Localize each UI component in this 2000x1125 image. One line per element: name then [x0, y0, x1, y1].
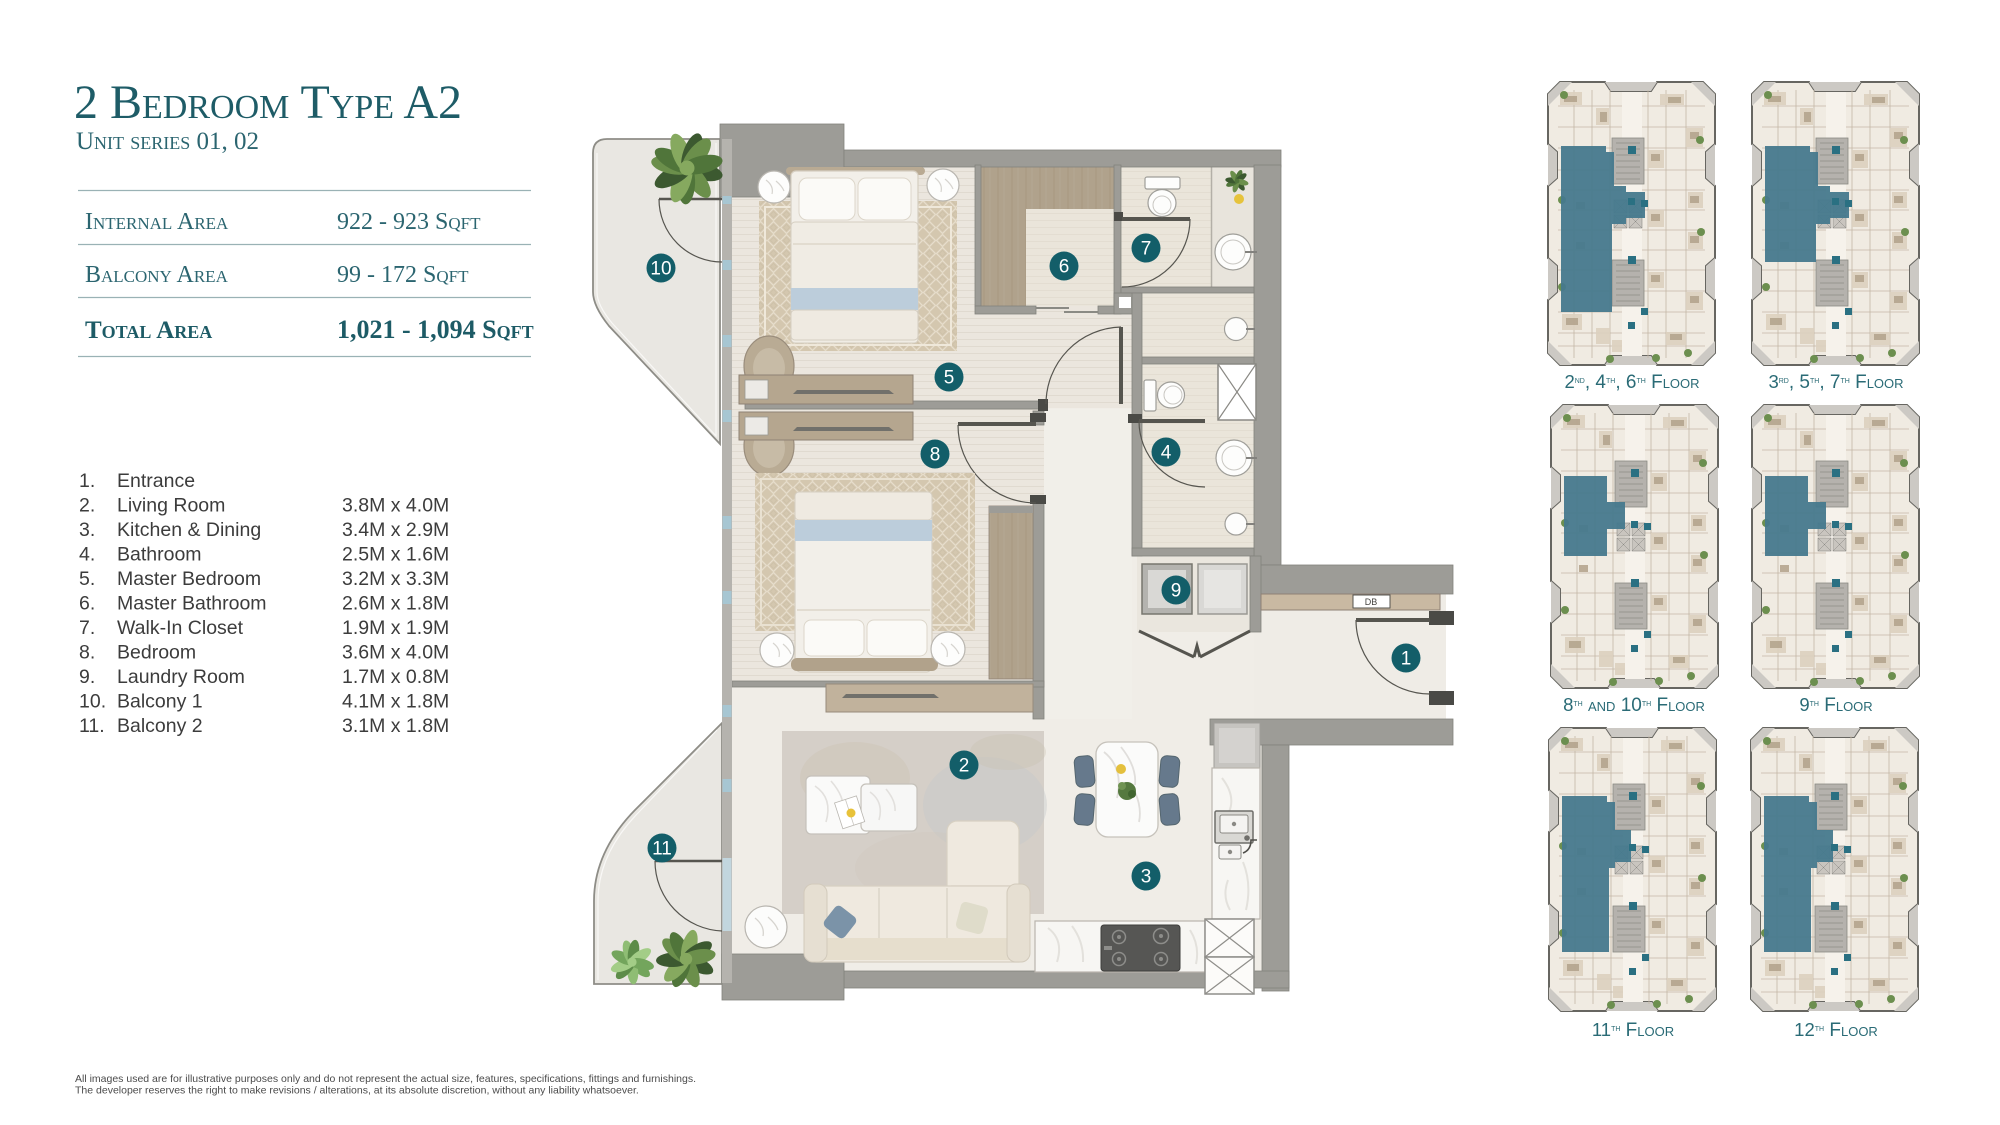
svg-text:5.: 5. [79, 568, 95, 590]
svg-text:1,021 - 1,094 Sqft: 1,021 - 1,094 Sqft [337, 315, 534, 344]
svg-text:2: 2 [959, 756, 970, 777]
svg-text:Laundry Room: Laundry Room [117, 666, 245, 688]
svg-text:1: 1 [1401, 649, 1412, 670]
svg-text:Walk-In Closet: Walk-In Closet [117, 617, 244, 639]
svg-text:The developer reserves the rig: The developer reserves the right to make… [75, 1085, 639, 1097]
svg-text:3.8M x 4.0M: 3.8M x 4.0M [342, 495, 449, 517]
svg-text:11: 11 [652, 839, 672, 860]
svg-text:3: 3 [1141, 867, 1152, 888]
svg-text:10.: 10. [79, 691, 106, 713]
svg-text:DB: DB [1365, 597, 1378, 607]
svg-text:Master Bedroom: Master Bedroom [117, 568, 261, 590]
svg-text:4.: 4. [79, 544, 95, 566]
svg-text:7: 7 [1141, 239, 1152, 260]
svg-text:6: 6 [1059, 257, 1070, 278]
svg-text:Master Bathroom: Master Bathroom [117, 593, 267, 615]
svg-text:922 - 923 Sqft: 922 - 923 Sqft [337, 209, 481, 235]
svg-text:3.: 3. [79, 519, 95, 541]
svg-text:Balcony Area: Balcony Area [85, 262, 229, 288]
svg-text:4: 4 [1161, 443, 1172, 464]
svg-text:Living Room: Living Room [117, 495, 225, 517]
svg-text:8th and 10th Floor: 8th and 10th Floor [1563, 694, 1705, 716]
svg-text:Internal Area: Internal Area [85, 209, 229, 235]
svg-text:Bathroom: Bathroom [117, 544, 202, 566]
svg-text:3.2M x 3.3M: 3.2M x 3.3M [342, 568, 449, 590]
svg-text:Kitchen & Dining: Kitchen & Dining [117, 519, 261, 541]
svg-text:8: 8 [930, 445, 941, 466]
svg-text:Balcony 1: Balcony 1 [117, 691, 203, 713]
svg-text:11.: 11. [79, 715, 105, 737]
svg-text:1.9M x 1.9M: 1.9M x 1.9M [342, 617, 449, 639]
svg-text:4.1M x 1.8M: 4.1M x 1.8M [342, 691, 449, 713]
svg-text:10: 10 [650, 259, 671, 280]
svg-text:12th Floor: 12th Floor [1794, 1019, 1878, 1041]
svg-text:9.: 9. [79, 666, 95, 688]
svg-text:2 Bedroom Type A2: 2 Bedroom Type A2 [74, 76, 462, 129]
svg-text:All images used are for illust: All images used are for illustrative pur… [75, 1073, 696, 1085]
svg-text:Total Area: Total Area [85, 317, 212, 344]
svg-text:11th Floor: 11th Floor [1592, 1019, 1674, 1041]
svg-text:Balcony 2: Balcony 2 [117, 715, 203, 737]
svg-text:2.5M x 1.6M: 2.5M x 1.6M [342, 544, 449, 566]
svg-text:Unit series 01, 02: Unit series 01, 02 [76, 128, 259, 155]
svg-text:2nd, 4th, 6th Floor: 2nd, 4th, 6th Floor [1564, 371, 1699, 393]
svg-text:3.4M x 2.9M: 3.4M x 2.9M [342, 519, 449, 541]
svg-text:2.: 2. [79, 495, 95, 517]
svg-text:1.: 1. [79, 470, 95, 492]
svg-text:Entrance: Entrance [117, 470, 195, 492]
svg-text:5: 5 [944, 368, 955, 389]
svg-text:Bedroom: Bedroom [117, 642, 196, 664]
svg-text:3.1M x 1.8M: 3.1M x 1.8M [342, 715, 449, 737]
svg-text:9: 9 [1171, 581, 1182, 602]
svg-text:1.7M x 0.8M: 1.7M x 0.8M [342, 666, 449, 688]
svg-text:8.: 8. [79, 642, 95, 664]
svg-text:7.: 7. [79, 617, 95, 639]
svg-text:99 - 172 Sqft: 99 - 172 Sqft [337, 262, 469, 288]
svg-text:3rd, 5th, 7th Floor: 3rd, 5th, 7th Floor [1768, 371, 1903, 393]
svg-text:2.6M x 1.8M: 2.6M x 1.8M [342, 593, 449, 615]
svg-text:3.6M x 4.0M: 3.6M x 4.0M [342, 642, 449, 664]
svg-text:6.: 6. [79, 593, 95, 615]
